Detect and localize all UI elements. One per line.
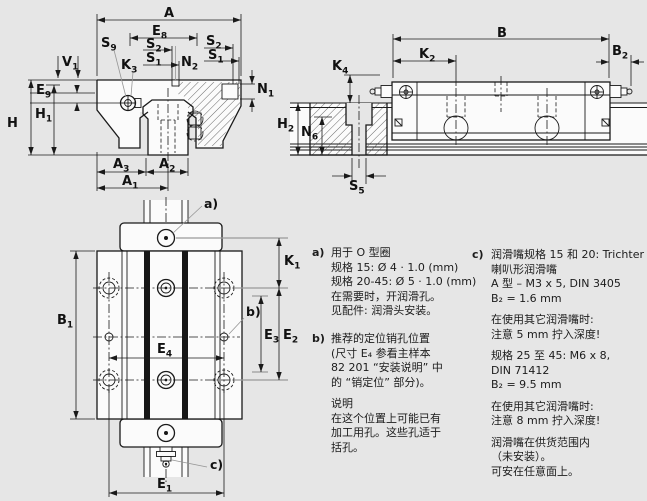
dim-label-h1: H1 — [35, 108, 52, 125]
dim-label-e2: E2 — [283, 329, 298, 346]
paragraph-gap — [491, 342, 647, 349]
note-line: 注意 5 mm 拧入深度! — [491, 328, 647, 343]
note-line: B₂ = 1.6 mm — [491, 292, 647, 307]
note-line: 推荐的定位销孔位置 — [331, 332, 489, 347]
note-line: 括孔。 — [331, 441, 489, 456]
dim-label-a-dim: A — [164, 7, 174, 24]
note-line: 在这个位置上可能已有 — [331, 412, 489, 427]
dim-label-e9: E9 — [36, 84, 51, 101]
note-a-marker: a) — [312, 246, 324, 261]
paragraph-gap — [491, 393, 647, 400]
note-line: 润滑嘴在供货范围内 — [491, 436, 647, 451]
note-line: 可安在任意面上。 — [491, 465, 647, 480]
dim-label-h: H — [7, 117, 18, 134]
dim-label-n6: N6 — [301, 126, 318, 143]
grease-nipple-side-left-icon — [370, 86, 392, 98]
rail-cut-section — [310, 95, 387, 168]
dim-label-b: B — [497, 27, 507, 44]
note-line: 注意 8 mm 拧入深度! — [491, 414, 647, 429]
note-line: A 型 – M3 x 5, DIN 3405 — [491, 277, 647, 292]
paragraph-gap — [331, 390, 489, 397]
note-line: DIN 71412 — [491, 364, 647, 379]
end-cap-screw-left-icon — [400, 86, 413, 99]
paragraph-gap — [491, 429, 647, 436]
callout-a-label: a) — [204, 198, 218, 211]
dim-label-a3: A3 — [113, 158, 129, 175]
grease-nipple-side-right-icon — [610, 86, 632, 98]
note-line: 说明 — [331, 397, 489, 412]
note-a: a) 用于 O 型圈 规格 15: Ø 4 · 1.0 (mm) 规格 20-4… — [312, 246, 489, 319]
note-c: c) 润滑嘴规格 15 和 20: Trichter 喇叭形润滑嘴 A 型 – … — [472, 248, 647, 479]
callout-b-label: b) — [246, 306, 261, 319]
note-line: 在使用其它润滑嘴时: — [491, 313, 647, 328]
dim-label-v1: V1 — [62, 56, 78, 73]
drawing-page: A E8 S2 S1 S9 K3 N2 S2 S1 N1 V1 E9 H1 H … — [0, 0, 647, 501]
dim-label-n2: N2 — [181, 56, 198, 73]
note-line: 见配件: 润滑头安装。 — [331, 304, 489, 319]
rail-edge-band-right — [182, 251, 188, 419]
note-c-marker: c) — [472, 248, 484, 263]
note-line: （未安装）。 — [491, 450, 647, 465]
callout-c-label: c) — [210, 459, 223, 472]
dim-label-k4: K4 — [332, 60, 348, 77]
note-line: 规格 20-45: Ø 5 · 1.0 (mm) — [331, 275, 489, 290]
note-line: 的 “销定位” 部分)。 — [331, 376, 489, 391]
dim-label-h2: H2 — [277, 118, 294, 135]
dim-label-e3: E3 — [264, 329, 279, 346]
dim-label-b2: B2 — [612, 45, 628, 62]
note-line: B₂ = 9.5 mm — [491, 378, 647, 393]
rail-edge-band-left — [144, 251, 150, 419]
end-cap-screw-right-icon — [591, 86, 604, 99]
note-line: 用于 O 型圈 — [331, 246, 489, 261]
note-line: (尺寸 E₄ 参看主样本 — [331, 347, 489, 362]
dim-label-a2: A2 — [159, 158, 175, 175]
dim-label-n1: N1 — [257, 83, 274, 100]
note-line: 规格 15: Ø 4 · 1.0 (mm) — [331, 261, 489, 276]
dim-label-s1-right: S1 — [208, 49, 224, 66]
dim-label-s5: S5 — [349, 180, 365, 197]
note-line: 润滑嘴规格 15 和 20: Trichter — [491, 248, 647, 263]
dim-label-k2: K2 — [419, 48, 435, 65]
dim-label-b1: B1 — [57, 314, 73, 331]
dim-label-k3: K3 — [121, 59, 137, 76]
note-line: 在需要时，开润滑孔。 — [331, 290, 489, 305]
side-view — [290, 34, 647, 184]
dim-label-s1-left: S1 — [146, 52, 162, 69]
note-line: 喇叭形润滑嘴 — [491, 263, 647, 278]
note-line: 规格 25 至 45: M6 x 8, — [491, 349, 647, 364]
note-line: 82 201 “安装说明” 中 — [331, 361, 489, 376]
note-b-marker: b) — [312, 332, 325, 347]
note-line: 在使用其它润滑嘴时: — [491, 400, 647, 415]
dim-label-s9: S9 — [101, 37, 117, 54]
dim-label-k1: K1 — [284, 255, 300, 272]
note-b: b) 推荐的定位销孔位置 (尺寸 E₄ 参看主样本 82 201 “安装说明” … — [312, 332, 489, 455]
note-line: 加工用孔。这些孔适于 — [331, 426, 489, 441]
paragraph-gap — [491, 306, 647, 313]
top-view — [70, 197, 288, 497]
dim-label-e1: E1 — [157, 478, 172, 495]
dim-label-e4: E4 — [157, 343, 172, 360]
dim-label-a1: A1 — [122, 175, 138, 192]
